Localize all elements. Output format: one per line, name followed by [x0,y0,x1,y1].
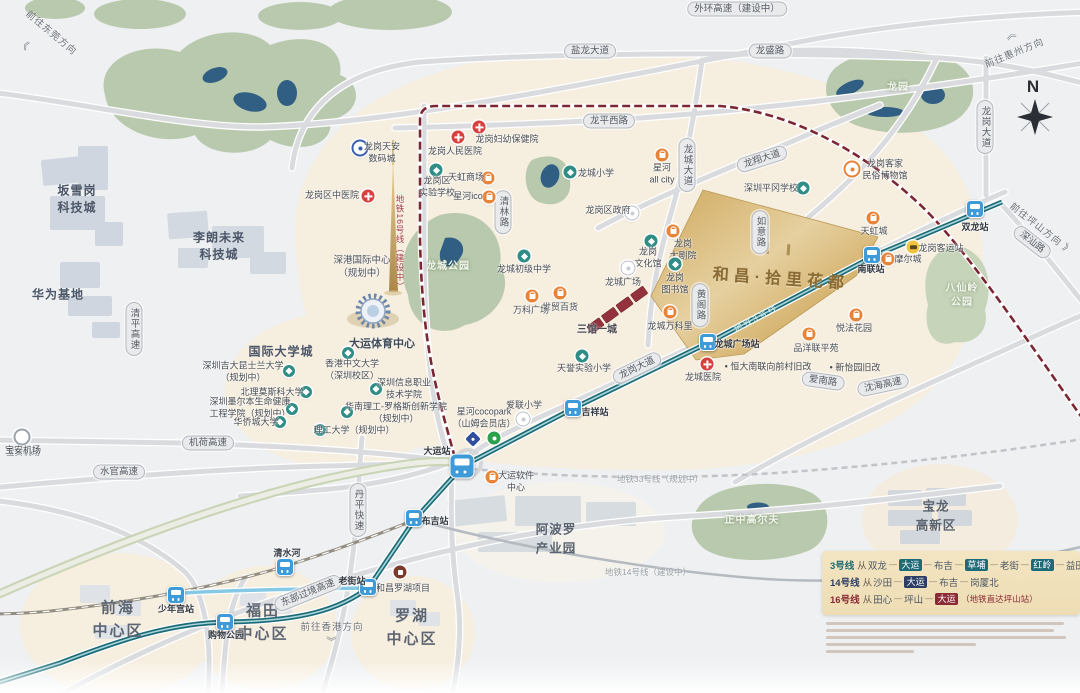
poi-label: 香港中文大学 （深圳校区） [325,358,379,381]
legend-separator: — [924,560,932,569]
legend-separator: — [889,560,897,569]
poi-label: 深圳吉大昆士兰大学 （规划中） [202,360,283,383]
road-label: 丹平快速 [350,483,367,537]
metro-station-label: 清水河 [273,548,300,560]
poi-school-icon [576,350,589,363]
dir-arrow-label: 》 [325,636,340,646]
note-line [826,636,1066,639]
poi-label: 龙岗 图书馆 [661,272,688,295]
legend-from: 从 [857,558,867,572]
legend-line-name: 14号线 [830,575,860,589]
north-compass-icon [1017,99,1053,135]
road-label: 盐龙大道 [564,44,616,59]
poi-label: 龙城万科里 [647,321,692,333]
poi-label: 和昌罗湖项目 [376,583,430,595]
legend-separator: — [1056,560,1064,569]
poi-label: 龙岗天安 数码城 [364,141,400,164]
poi-label: 龙岗区中医院 [305,190,359,202]
district-md-label: 宝龙 高新区 [916,497,957,535]
poi-school-icon [797,182,810,195]
north-label: N [1027,77,1039,97]
poi-label: 龙岗区政府 [585,205,630,217]
road-label: 龙平西路 [583,114,635,129]
poi-label: 宝安机场 [5,445,41,457]
legend-station: 坪山 [904,592,923,606]
poi-shop-icon [486,471,499,484]
poi-label: 龙城广场 [605,277,641,289]
poi-label: 摩尔城 [894,254,921,266]
poi-school-icon [564,166,577,179]
legend-station: 双龙 [868,558,887,572]
dir-label: 前往香港方向 [300,619,363,633]
poi-shop-icon [656,149,669,162]
poi-hospital-icon [473,121,486,134]
legend-station: 红岭 [1031,559,1054,571]
poi-label: 深圳信息职业 技术学院 [377,377,431,400]
metro-station-icon [167,586,185,604]
legend-suffix: （地铁直达坪山站） [961,593,1038,605]
metro-legend: 3号线从双龙—大运—布吉—草埔—老街—红岭—益田14号线从沙田—大运—布吉—岗厦… [822,551,1080,615]
metro-station-icon [216,613,234,631]
metro-station-label: 大运站 [423,446,450,458]
metro-station-label: 南联站 [857,264,884,276]
metro-gray-label: 地铁14号线（建设中） [605,566,691,578]
park-label: 龙城公园 [426,260,470,274]
road-label: 如意路 [752,210,769,254]
poi-univ-icon [283,365,295,377]
poi-shop-icon [526,290,539,303]
poi-label: 星河 all city [649,162,674,185]
road-label: 清林路 [495,190,512,234]
poi-shop-icon [850,309,863,322]
road-label: 龙城大道 [679,138,696,192]
poi-shop-icon [664,306,677,319]
legend-station: 大运 [935,593,958,605]
legend-notes [826,622,1072,657]
legend-station: 草埔 [965,559,988,571]
district-lg-label: 罗湖 中心区 [386,606,437,651]
poi-label: 天誉实验小学 [557,363,611,375]
poi-shop-icon [803,328,816,341]
legend-row: 16号线从田心—坪山—大运（地铁直达坪山站） [830,590,1072,607]
district-md-label: 阿波罗 产业园 [536,520,577,558]
metro-station-icon [564,399,582,417]
poi-gov-icon [621,261,636,276]
road-label: 龙盛路 [749,44,792,59]
metro-station-icon [966,200,984,218]
poi-label: 龙城小学 [578,168,614,180]
legend-station: 岗厦北 [970,575,999,589]
poi-hospital-icon [701,358,714,371]
poi-label: 星河ico [453,191,483,203]
poi-label: 悦法花园 [836,323,872,335]
bullet-label: • 新怡园旧改 [830,361,881,374]
metro-red-vert-label: 地铁16号线（建设中） [394,195,406,292]
poi-theater-icon [667,225,680,238]
poi-shop-icon [554,287,567,300]
district-label: 坂雪岗 科技城 [57,183,96,218]
legend-station: 沙田 [873,575,892,589]
metro-station-icon [450,454,475,479]
metro-station-label: 老街站 [338,576,365,588]
legend-station: 布吉 [934,558,953,572]
location-map: 和昌·拾里花都 N 3号线从双龙—大运—布吉—草埔—老街—红岭—益田14号线从沙… [0,0,1080,693]
property-logo-icon [766,243,791,256]
poi-label: 龙岗客家 民俗博物馆 [862,158,907,181]
legend-separator: — [925,594,933,603]
metro-station-icon [276,558,294,576]
district-label: 华为基地 [32,286,84,303]
legend-row: 14号线从沙田—大运—布吉—岗厦北 [830,573,1072,590]
road-label: 水官高速 [93,465,145,480]
legend-line-name: 16号线 [830,592,860,606]
note-line [826,643,976,646]
metro-station-label: 双龙站 [961,222,988,234]
poi-label: 理工大学（规划中） [313,425,394,437]
district-label: 国际大学城 [248,343,313,360]
legend-station: 益田 [1066,558,1080,572]
poi-label: 天虹商场 [448,172,484,184]
note-line [826,629,1054,632]
legend-line-name: 3号线 [830,558,854,572]
poi-label: 龙城医院 [685,372,721,384]
poi-label: 万科广场 [513,305,549,317]
bullet-label: • 恒大南联向前村旧改 [725,360,812,373]
district-label: 李朗未来 科技城 [193,230,245,265]
poi-label: 品洋联平苑 [793,343,838,355]
bold-dark2-label: 三馆一城 [577,321,617,336]
poi-label: 星河cocopark （山姆会员店） [452,406,515,429]
poi-shop-icon [867,212,880,225]
poi-school-icon [518,250,531,263]
poi-label: 龙岗 文化馆 [634,246,661,269]
poi-brand-icon [394,566,407,579]
metro-station-label: 布吉站 [421,516,448,528]
poi-shop-icon [483,191,496,204]
poi-label: 龙岗人民医院 [428,146,482,158]
poi-museum-icon [844,161,861,178]
poi-label: 天虹城 [860,226,887,238]
poi-dark-label: 深港国际中心 （规划中） [333,255,390,281]
legend-separator: — [894,594,902,603]
note-line [826,650,914,653]
metro-station-label: 吉祥站 [581,407,608,419]
legend-from: 从 [863,575,873,589]
road-label: 外环高速（建设中） [687,2,787,17]
metro-station-icon [405,509,423,527]
legend-separator: — [990,560,998,569]
legend-separator: — [960,577,968,586]
legend-separator: — [955,560,963,569]
legend-separator: — [1021,560,1029,569]
poi-cocogreen-icon [488,432,501,445]
note-line [826,622,1064,625]
legend-separator: — [894,577,902,586]
poi-label: 龙岗妇幼保健院 [475,134,538,146]
road-label: 机荷高速 [182,436,234,451]
legend-station: 布吉 [939,575,958,589]
poi-gov-icon [516,412,531,427]
poi-hospital-icon [362,190,375,203]
poi-ringgray-icon [14,429,31,446]
district-lg-label: 前海 中心区 [92,598,143,643]
legend-station: 大运 [904,576,927,588]
legend-station: 田心 [873,592,892,606]
road-label: 龙岗大道 [977,100,994,154]
bold-dark-label: 大运体育中心 [349,335,415,351]
metro-gray-label: 地铁33号线（规划中） [617,473,703,485]
metro-station-label: 购物公园 [208,630,244,642]
metro-station-label: 少年宫站 [158,604,194,616]
legend-station: 大运 [899,559,922,571]
legend-from: 从 [863,592,873,606]
park-label: 正中高尔夫 [725,514,780,528]
poi-hospital-icon [452,131,465,144]
poi-label: 华侨城大学 [233,417,278,429]
road-label: 黄阁路 [692,283,709,327]
poi-label: 龙岗客运站 [918,243,963,255]
park-label: 龙园 [887,81,909,95]
metro-station-label: 龙城广场站 [714,339,759,351]
poi-univ-icon [342,347,354,359]
park-label: 八仙岭 公园 [946,282,979,310]
legend-station: 老街 [1000,558,1019,572]
poi-label: 华南理工-罗格斯创新学院 （规划中） [345,401,447,424]
legend-separator: — [929,577,937,586]
legend-row: 3号线从双龙—大运—布吉—草埔—老街—红岭—益田 [830,556,1072,573]
poi-label: 大运软件 中心 [498,470,534,493]
poi-label: 龙城初级中学 [497,264,551,276]
metro-station-icon [863,246,881,264]
poi-culture-icon [669,258,682,271]
road-label: 清平高速 [126,302,143,356]
poi-label: 深圳平冈学校 [744,183,798,195]
